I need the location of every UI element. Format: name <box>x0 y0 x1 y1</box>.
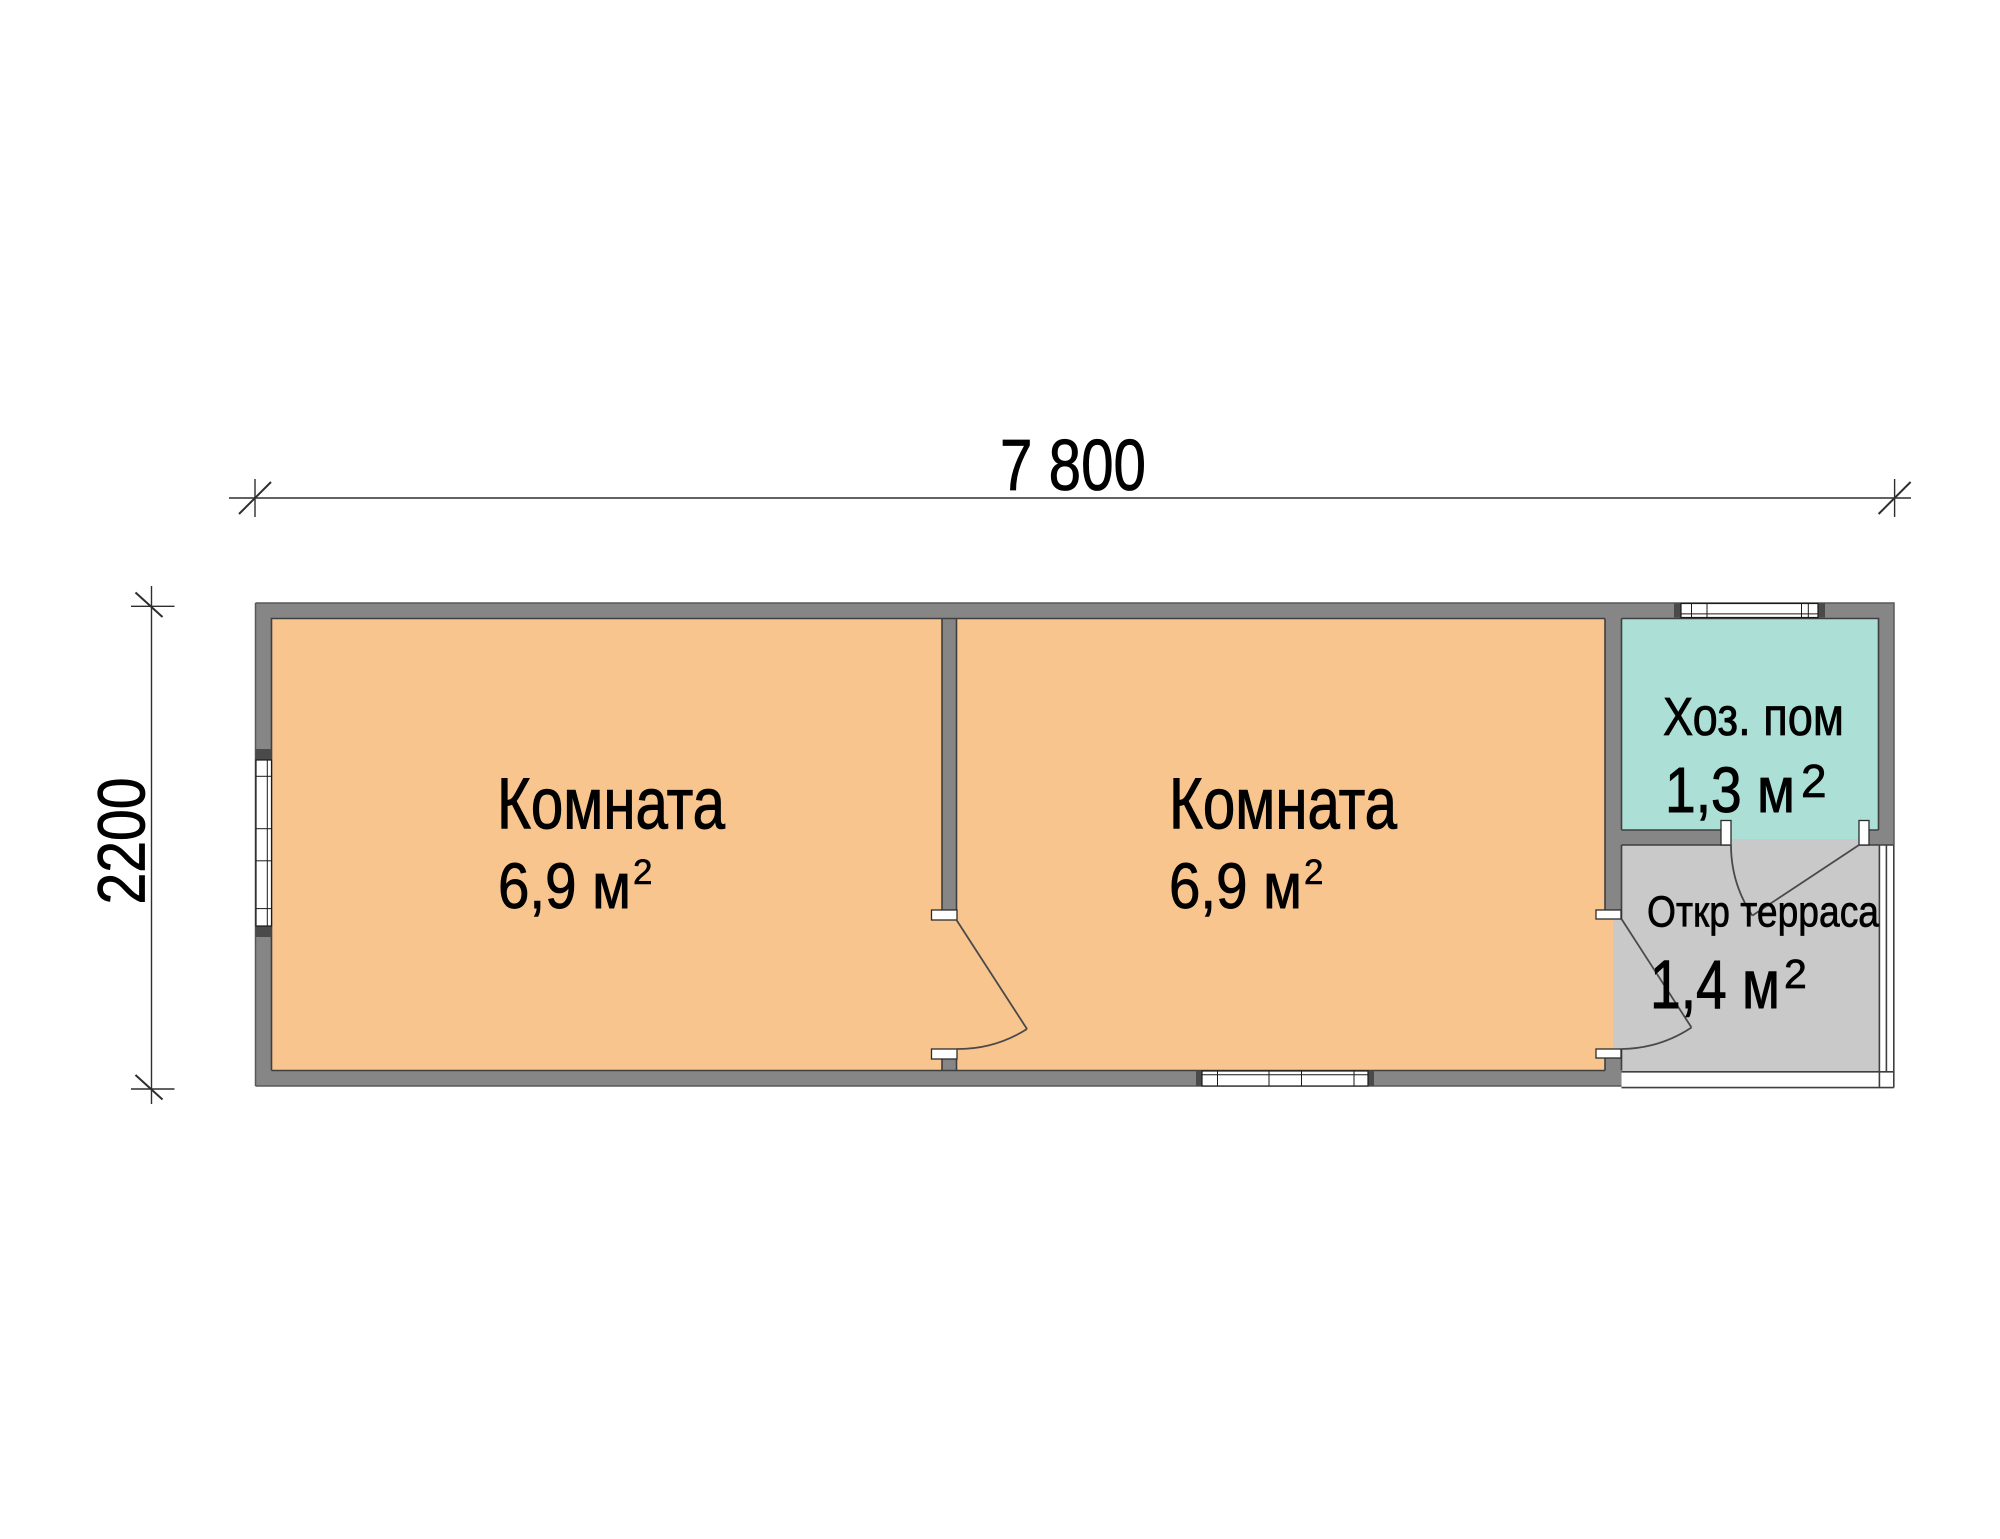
svg-text:Комната: Комната <box>497 764 726 845</box>
svg-text:1,4 м: 1,4 м <box>1650 946 1780 1023</box>
svg-text:2: 2 <box>1304 853 1323 892</box>
svg-text:1,3 м: 1,3 м <box>1665 754 1795 826</box>
svg-text:2: 2 <box>633 853 652 892</box>
svg-text:Комната: Комната <box>1169 764 1398 845</box>
svg-text:2: 2 <box>1801 755 1827 807</box>
svg-text:6,9 м: 6,9 м <box>498 850 631 922</box>
svg-text:Откр терраса: Откр терраса <box>1647 888 1879 937</box>
svg-text:7 800: 7 800 <box>1000 426 1146 506</box>
svg-text:2: 2 <box>1784 951 1807 997</box>
svg-text:2200: 2200 <box>85 778 160 905</box>
svg-text:6,9 м: 6,9 м <box>1169 850 1302 922</box>
svg-text:Хоз. пом: Хоз. пом <box>1663 687 1844 747</box>
